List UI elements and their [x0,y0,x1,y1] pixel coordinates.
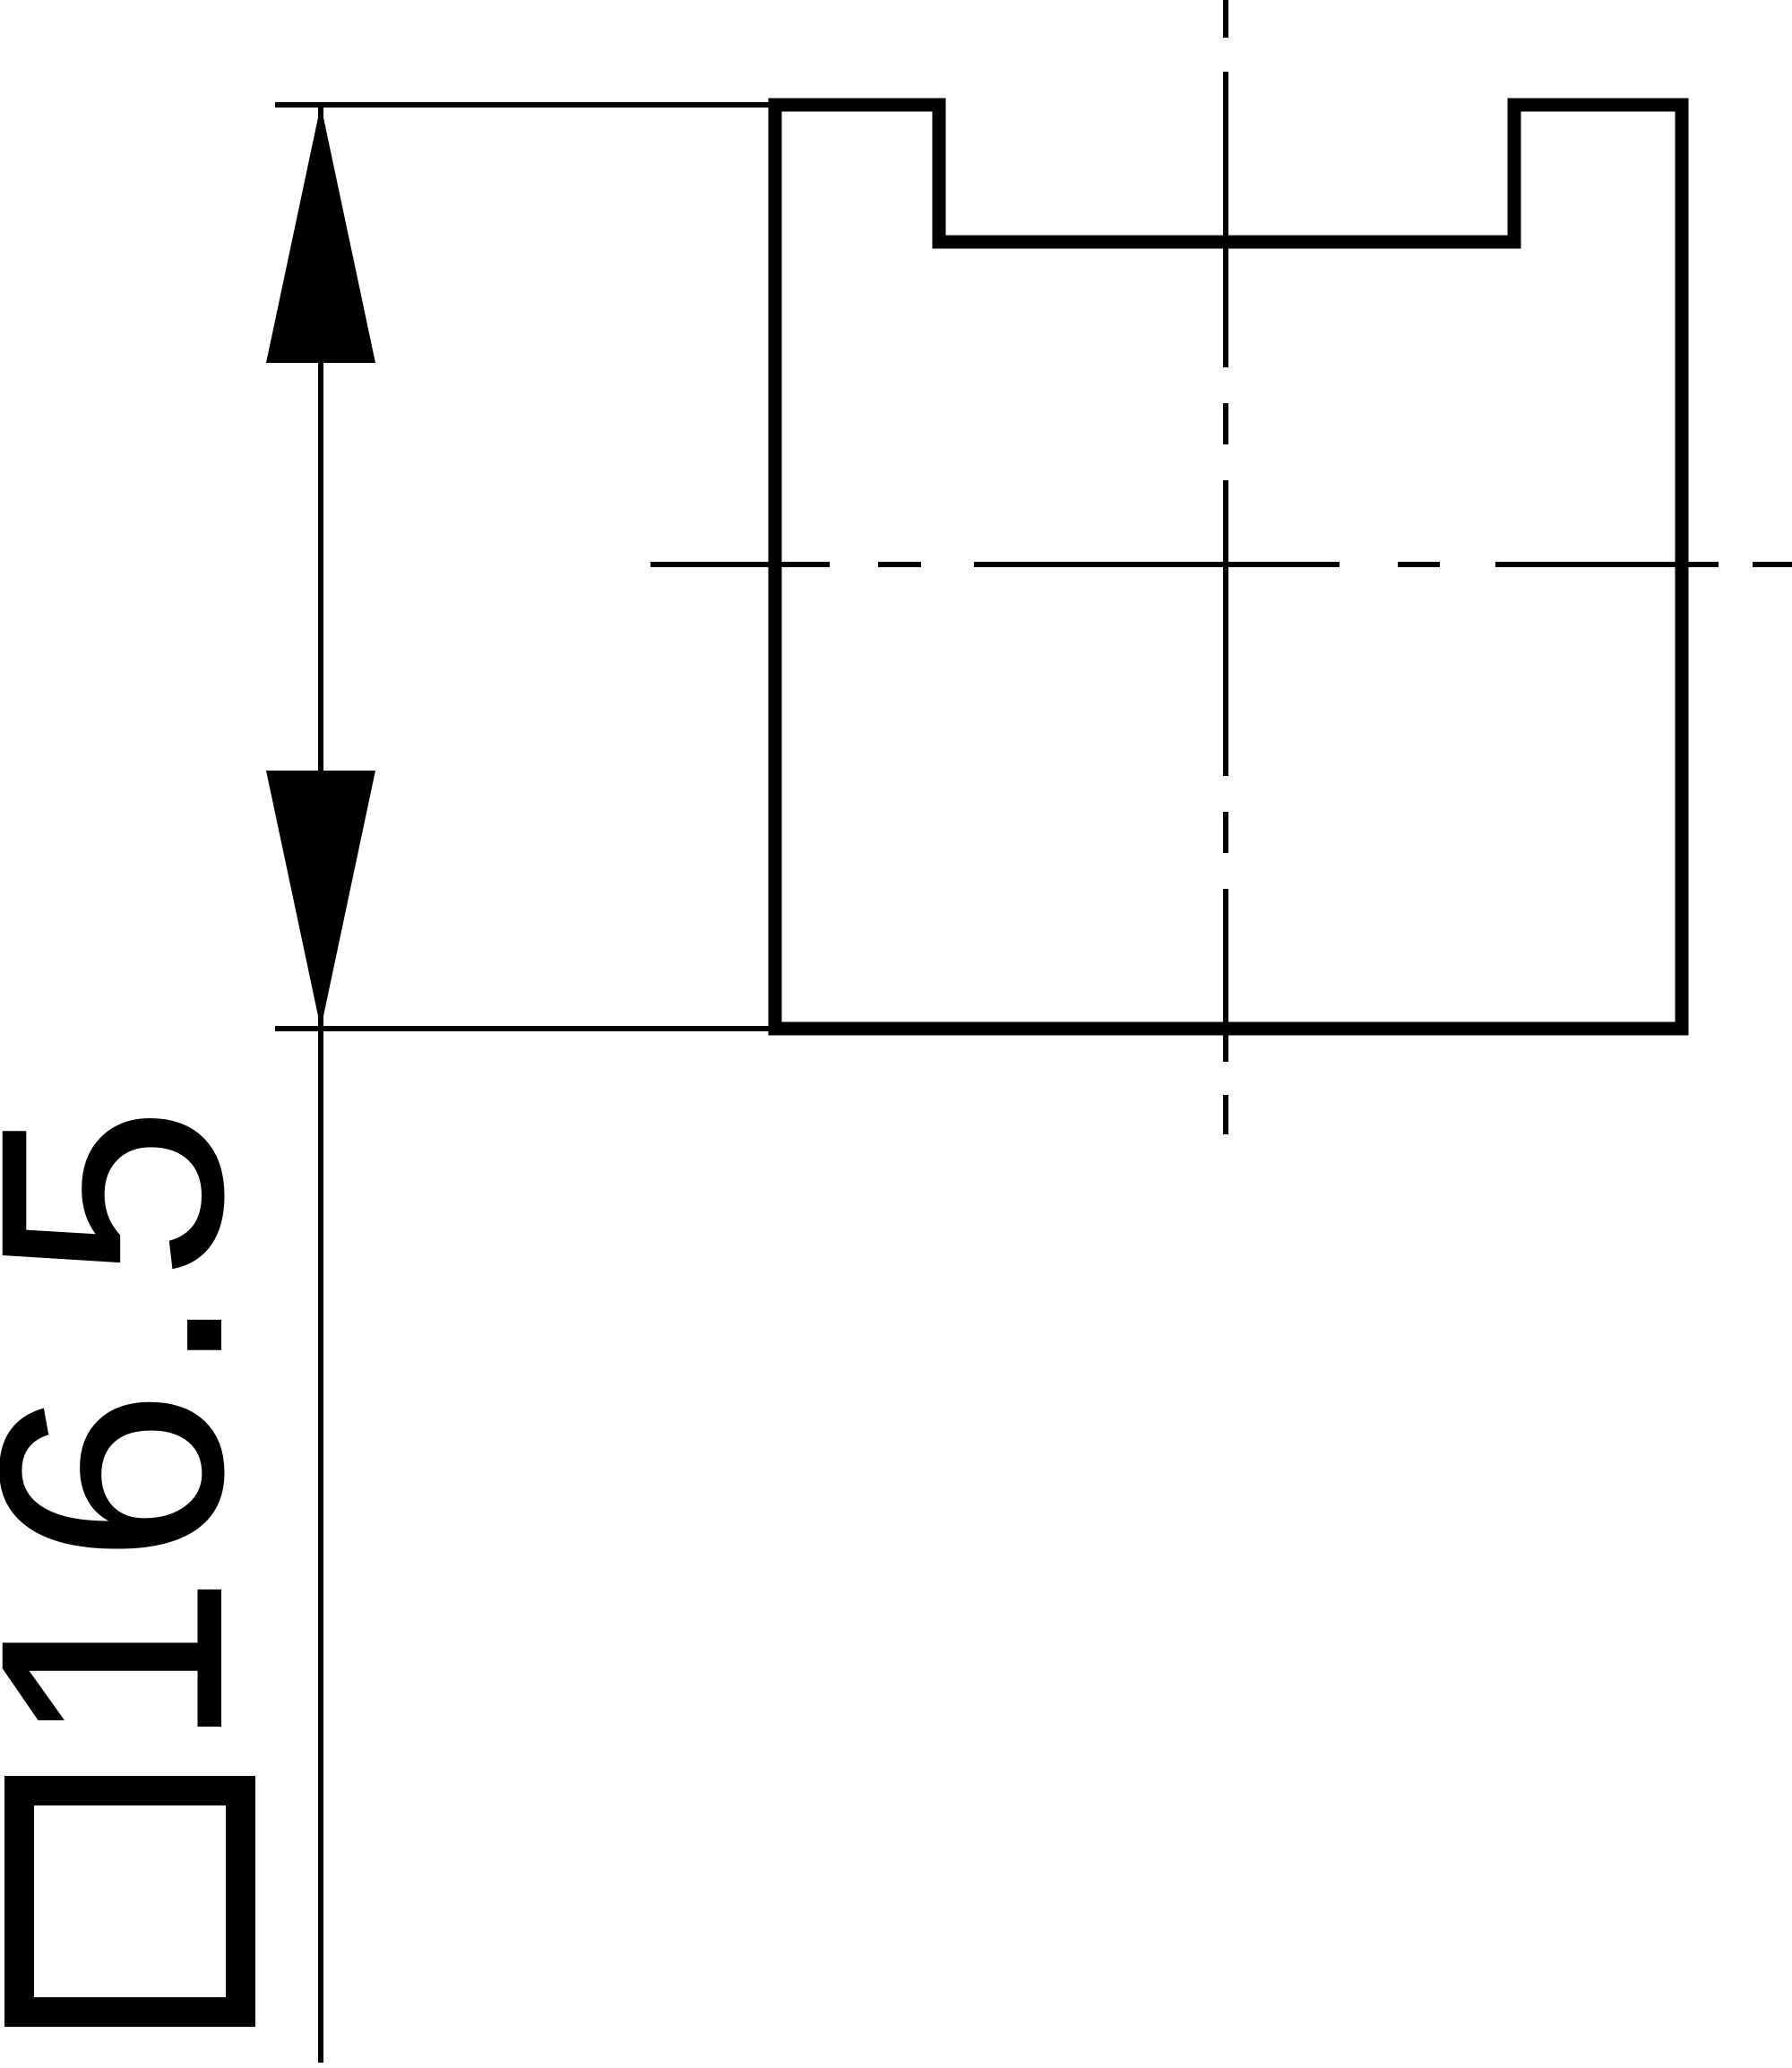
dimension-label: 16.5 [0,1095,260,2027]
drawing-canvas: 16.5 [0,0,1792,2068]
dimension-arrow-up-icon [266,105,375,363]
square-symbol-icon [4,1776,255,2027]
dimension-value: 16.5 [0,1096,271,1751]
dimension-arrow-down-icon [266,771,375,1029]
part-drawing [0,0,1792,2068]
